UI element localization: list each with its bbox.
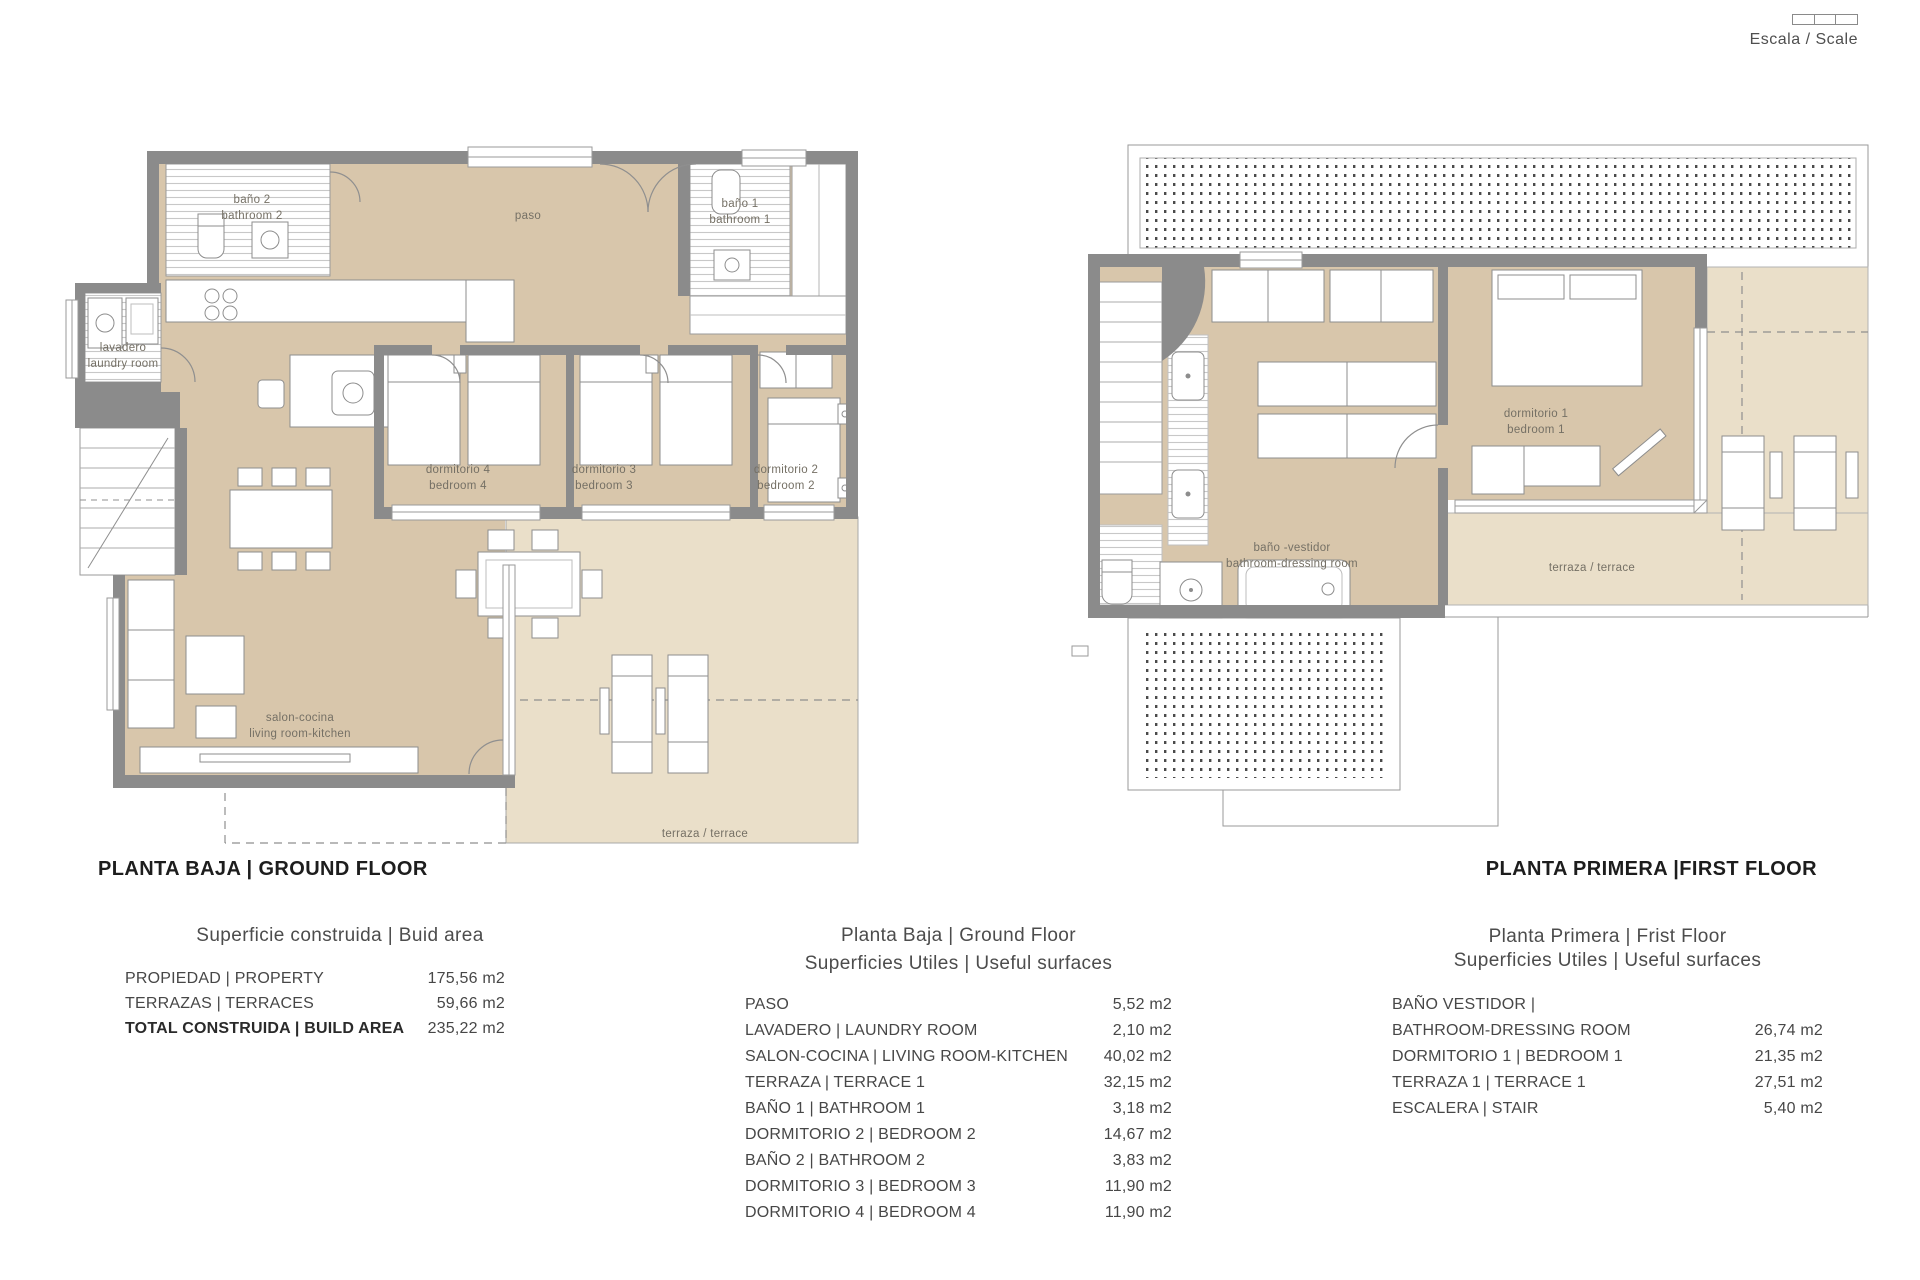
table-row: BATHROOM-DRESSING ROOM 26,74 m2: [1392, 1018, 1823, 1044]
room-label-paso: paso: [515, 208, 541, 224]
table-row: TERRAZA 1 | TERRACE 1 27,51 m2: [1392, 1070, 1823, 1096]
table-row: TOTAL CONSTRUIDA | BUILD AREA 235,22 m2: [125, 1016, 505, 1041]
scale-widget: Escala / Scale: [1712, 14, 1858, 49]
first-floor-title: PLANTA PRIMERA |FIRST FLOOR: [1360, 858, 1817, 881]
build-area-header: Superficie construida | Buid area: [140, 925, 540, 947]
room-label-bathroom2: baño 2 bathroom 2: [221, 192, 282, 224]
room-label-bedroom2: dormitorio 2 bedroom 2: [754, 462, 818, 494]
scale-label: Escala / Scale: [1712, 31, 1858, 49]
table-row: DORMITORIO 3 | BEDROOM 3 11,90 m2: [745, 1174, 1172, 1200]
ground-useful-header: Planta Baja | Ground Floor Superficies U…: [745, 922, 1172, 978]
pergola-dots: [1142, 630, 1386, 778]
room-label-terrace-ground: terraza / terrace: [662, 826, 748, 842]
build-area-table: PROPIEDAD | PROPERTY 175,56 m2 TERRAZAS …: [125, 966, 505, 1041]
scale-bar: [1792, 14, 1858, 25]
table-row: BAÑO VESTIDOR |: [1392, 992, 1823, 1018]
room-label-living-room: salon-cocina living room-kitchen: [249, 710, 351, 742]
room-label-bathroom1: baño 1 bathroom 1: [709, 196, 770, 228]
table-row: LAVADERO | LAUNDRY ROOM 2,10 m2: [745, 1018, 1172, 1044]
table-row: PROPIEDAD | PROPERTY 175,56 m2: [125, 966, 505, 991]
table-row: DORMITORIO 4 | BEDROOM 4 11,90 m2: [745, 1200, 1172, 1226]
table-row: DORMITORIO 1 | BEDROOM 1 21,35 m2: [1392, 1044, 1823, 1070]
stairs-ground: [80, 428, 175, 575]
room-label-bedroom4: dormitorio 4 bedroom 4: [426, 462, 490, 494]
first-useful-table: BAÑO VESTIDOR | BATHROOM-DRESSING ROOM 2…: [1392, 992, 1823, 1122]
table-row: DORMITORIO 2 | BEDROOM 2 14,67 m2: [745, 1122, 1172, 1148]
bathroom1-room: [678, 164, 846, 334]
stairs-first: [1094, 282, 1162, 494]
ground-floor-title: PLANTA BAJA | GROUND FLOOR: [98, 858, 428, 881]
table-row: TERRAZAS | TERRACES 59,66 m2: [125, 991, 505, 1016]
table-row: TERRAZA | TERRACE 1 32,15 m2: [745, 1070, 1172, 1096]
first-useful-header: Planta Primera | Frist Floor Superficies…: [1392, 925, 1823, 973]
room-label-bedroom1: dormitorio 1 bedroom 1: [1504, 406, 1568, 438]
table-row: BAÑO 2 | BATHROOM 2 3,83 m2: [745, 1148, 1172, 1174]
room-label-laundry: lavadero laundry room: [88, 340, 159, 372]
room-label-terrace-first: terraza / terrace: [1549, 560, 1635, 576]
table-row: SALON-COCINA | LIVING ROOM-KITCHEN 40,02…: [745, 1044, 1172, 1070]
table-row: BAÑO 1 | BATHROOM 1 3,18 m2: [745, 1096, 1172, 1122]
table-row: PASO 5,52 m2: [745, 992, 1172, 1018]
roof-dotted-band: [1140, 158, 1856, 248]
ground-floor-plan: [66, 147, 858, 843]
ground-useful-table: PASO 5,52 m2 LAVADERO | LAUNDRY ROOM 2,1…: [745, 992, 1172, 1226]
first-floor-plan: [1072, 145, 1868, 826]
floor-plan-sheet: Escala / Scale baño 2 bathroom 2 paso ba…: [0, 0, 1920, 1280]
dining-table: [230, 468, 332, 570]
room-label-bedroom3: dormitorio 3 bedroom 3: [572, 462, 636, 494]
bedroom1-furniture: [1472, 270, 1666, 494]
room-label-bathroom-dressing: baño -vestidor bathroom-dressing room: [1226, 540, 1358, 572]
table-row: ESCALERA | STAIR 5,40 m2: [1392, 1096, 1823, 1122]
